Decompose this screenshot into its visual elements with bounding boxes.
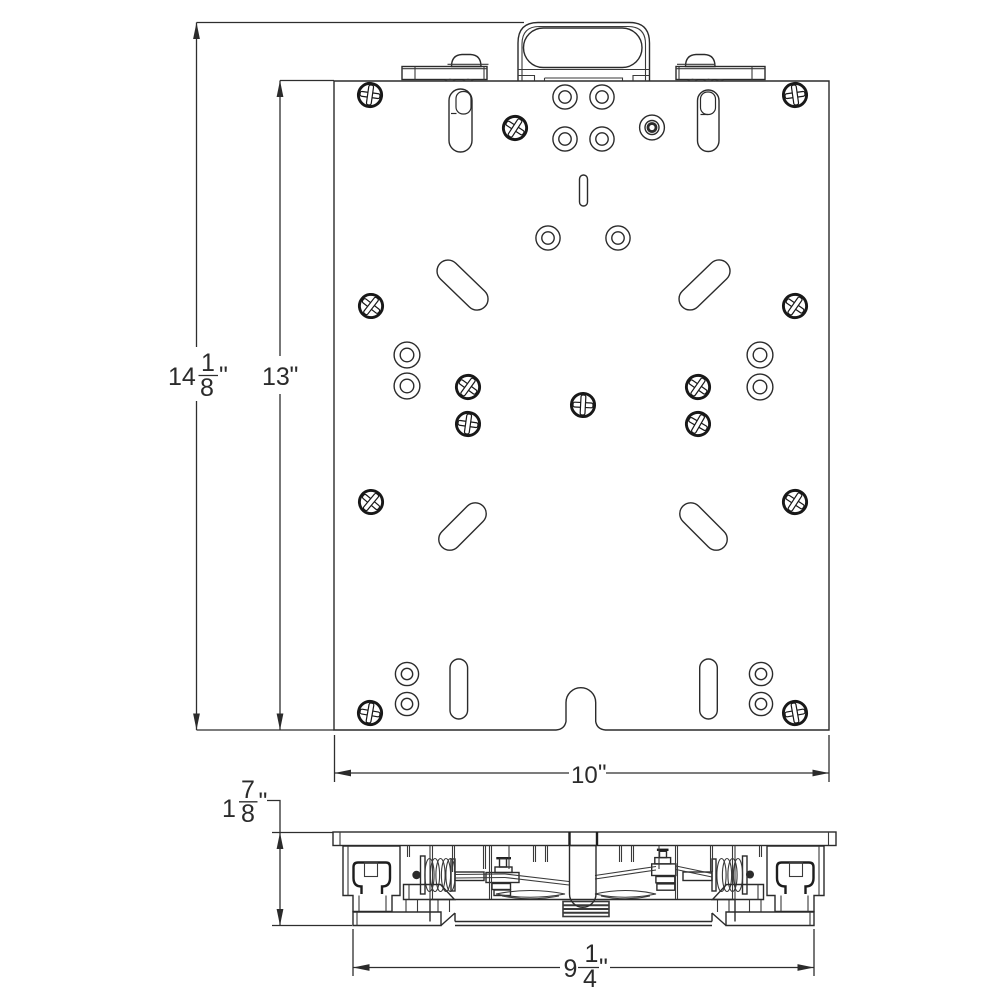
svg-text:": " [259,788,268,816]
svg-text:1: 1 [585,940,599,968]
svg-text:8: 8 [241,800,255,828]
svg-text:9: 9 [564,955,578,983]
svg-text:": " [598,760,607,787]
svg-text:1: 1 [201,349,215,377]
svg-text:": " [219,362,228,390]
svg-text:": " [290,362,299,390]
svg-text:13: 13 [262,363,290,391]
svg-text:8: 8 [200,374,214,402]
svg-text:1: 1 [222,795,236,823]
svg-text:10: 10 [571,762,598,789]
svg-text:": " [599,954,608,982]
svg-text:4: 4 [583,965,597,993]
svg-text:14: 14 [168,363,196,391]
